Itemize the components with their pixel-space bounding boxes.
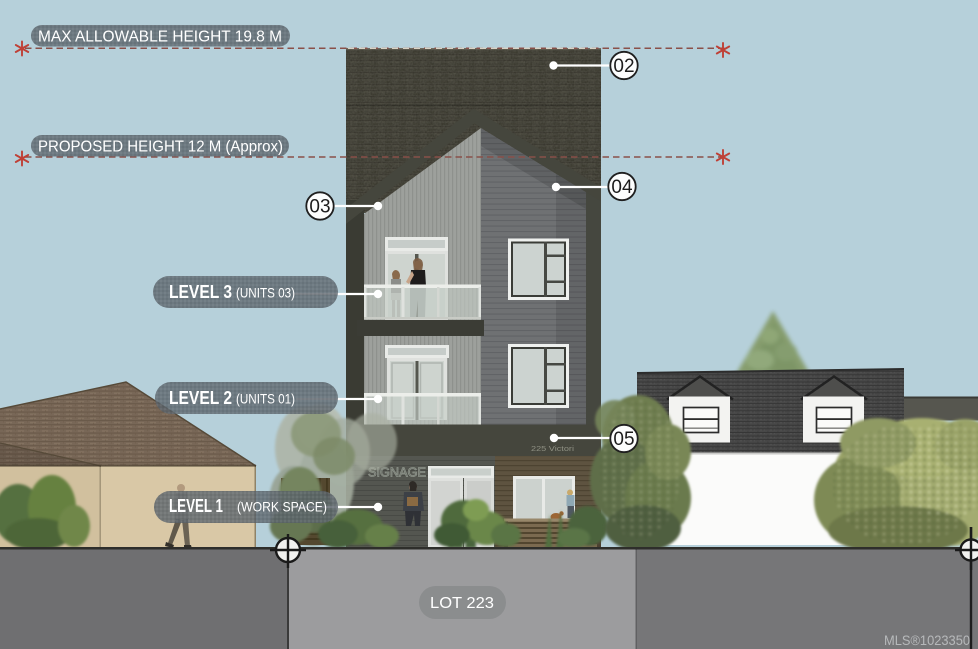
svg-text:LOT 223: LOT 223 [430, 595, 494, 612]
svg-text:05: 05 [613, 429, 634, 450]
svg-text:LEVEL 1: LEVEL 1 [169, 495, 223, 516]
svg-text:225 Victori: 225 Victori [531, 444, 574, 453]
svg-text:LEVEL 3: LEVEL 3 [169, 281, 232, 302]
svg-text:(UNITS 01): (UNITS 01) [236, 391, 295, 407]
svg-text:MAX ALLOWABLE HEIGHT 19.8 M: MAX ALLOWABLE HEIGHT 19.8 M [38, 29, 282, 46]
svg-text:(WORK SPACE): (WORK SPACE) [237, 499, 327, 515]
svg-text:(UNITS 03): (UNITS 03) [236, 285, 295, 301]
svg-text:04: 04 [611, 177, 633, 198]
svg-text:02: 02 [613, 56, 634, 77]
svg-text:03: 03 [309, 197, 330, 218]
svg-text:PROPOSED HEIGHT 12 M (Approx): PROPOSED HEIGHT 12 M (Approx) [38, 139, 283, 156]
svg-text:LEVEL 2: LEVEL 2 [169, 387, 232, 408]
svg-text:MLS®1023350: MLS®1023350 [884, 632, 970, 648]
